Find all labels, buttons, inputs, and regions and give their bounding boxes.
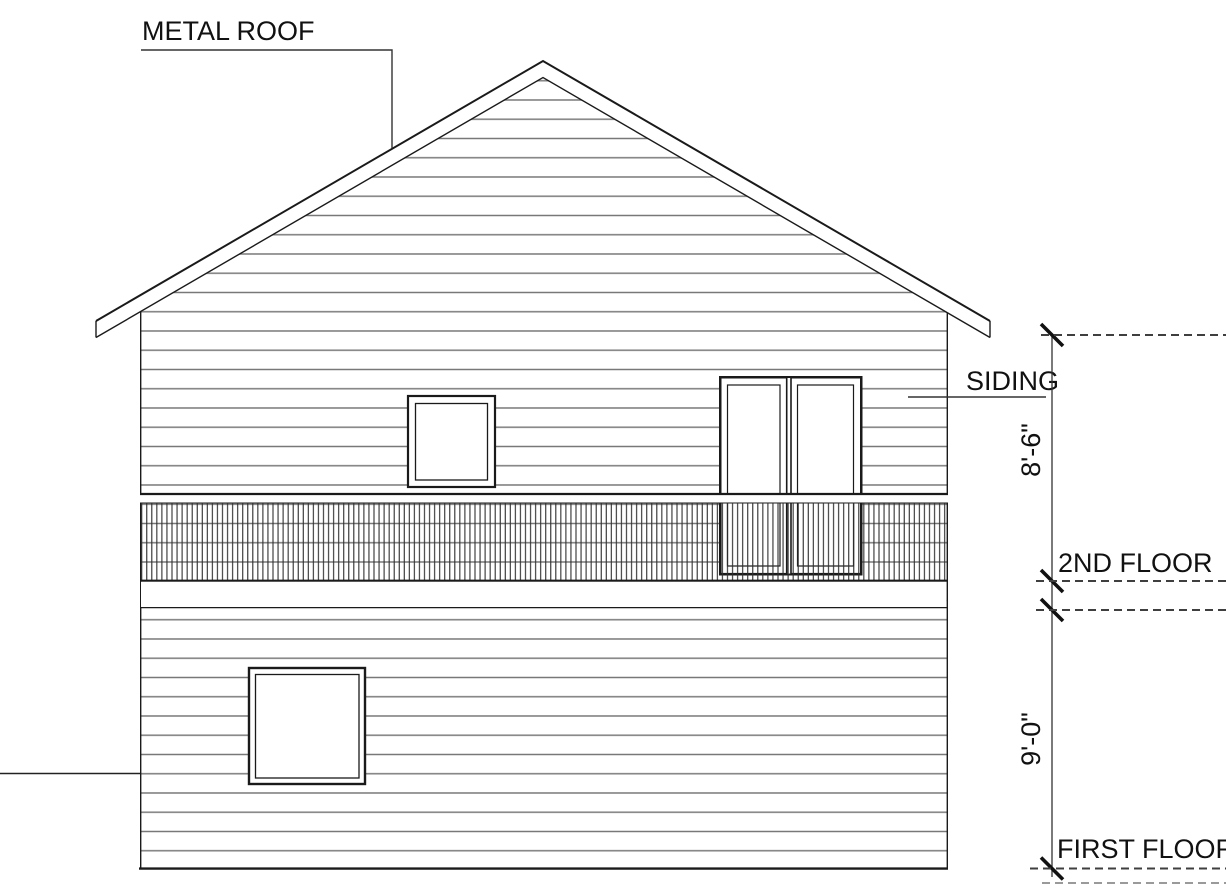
balcony-railing: [140, 494, 948, 608]
metal-roof-label: METAL ROOF: [142, 16, 315, 46]
window-outer-frame: [249, 668, 365, 784]
first-floor-window: [249, 668, 365, 784]
railing-balusters: [141, 503, 947, 581]
siding-label: SIDING: [966, 366, 1059, 396]
deck-rim-band: [141, 582, 947, 608]
house-elevation-drawing: METAL ROOF SIDING 8'-6" 9'-0" 2ND FLOOR …: [0, 0, 1226, 890]
upper-wall-height-dimension: 8'-6": [1016, 423, 1046, 477]
second-floor-window: [408, 396, 495, 487]
first-floor-label: FIRST FLOOR: [1057, 834, 1226, 864]
second-floor-label: 2ND FLOOR: [1058, 548, 1213, 578]
lower-wall-height-dimension: 9'-0": [1016, 712, 1046, 766]
window-outer-frame: [408, 396, 495, 487]
